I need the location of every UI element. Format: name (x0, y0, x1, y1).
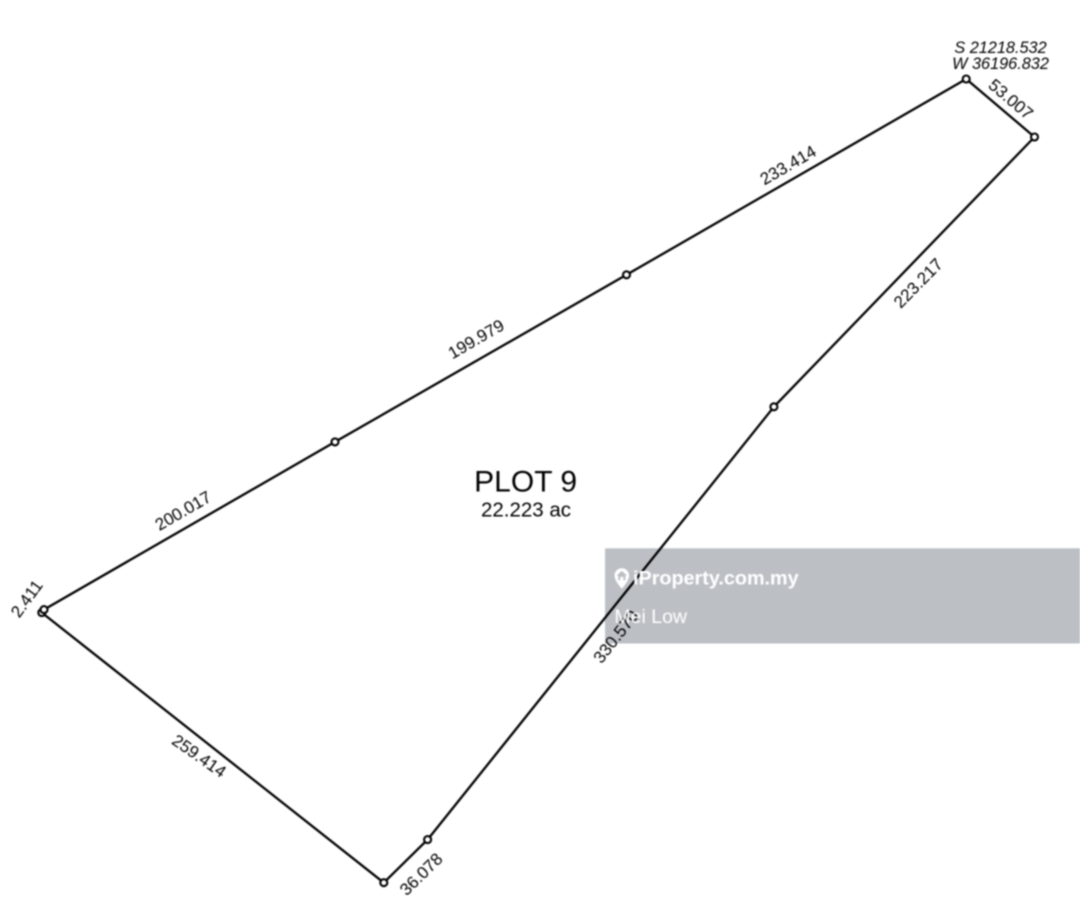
svg-text:PLOT 9: PLOT 9 (474, 466, 577, 499)
svg-text:Mei Low: Mei Low (614, 606, 688, 628)
svg-text:22.223 ac: 22.223 ac (481, 499, 571, 522)
svg-text:iProperty.com.my: iProperty.com.my (633, 568, 799, 590)
svg-text:W 36196.832: W 36196.832 (952, 55, 1049, 73)
